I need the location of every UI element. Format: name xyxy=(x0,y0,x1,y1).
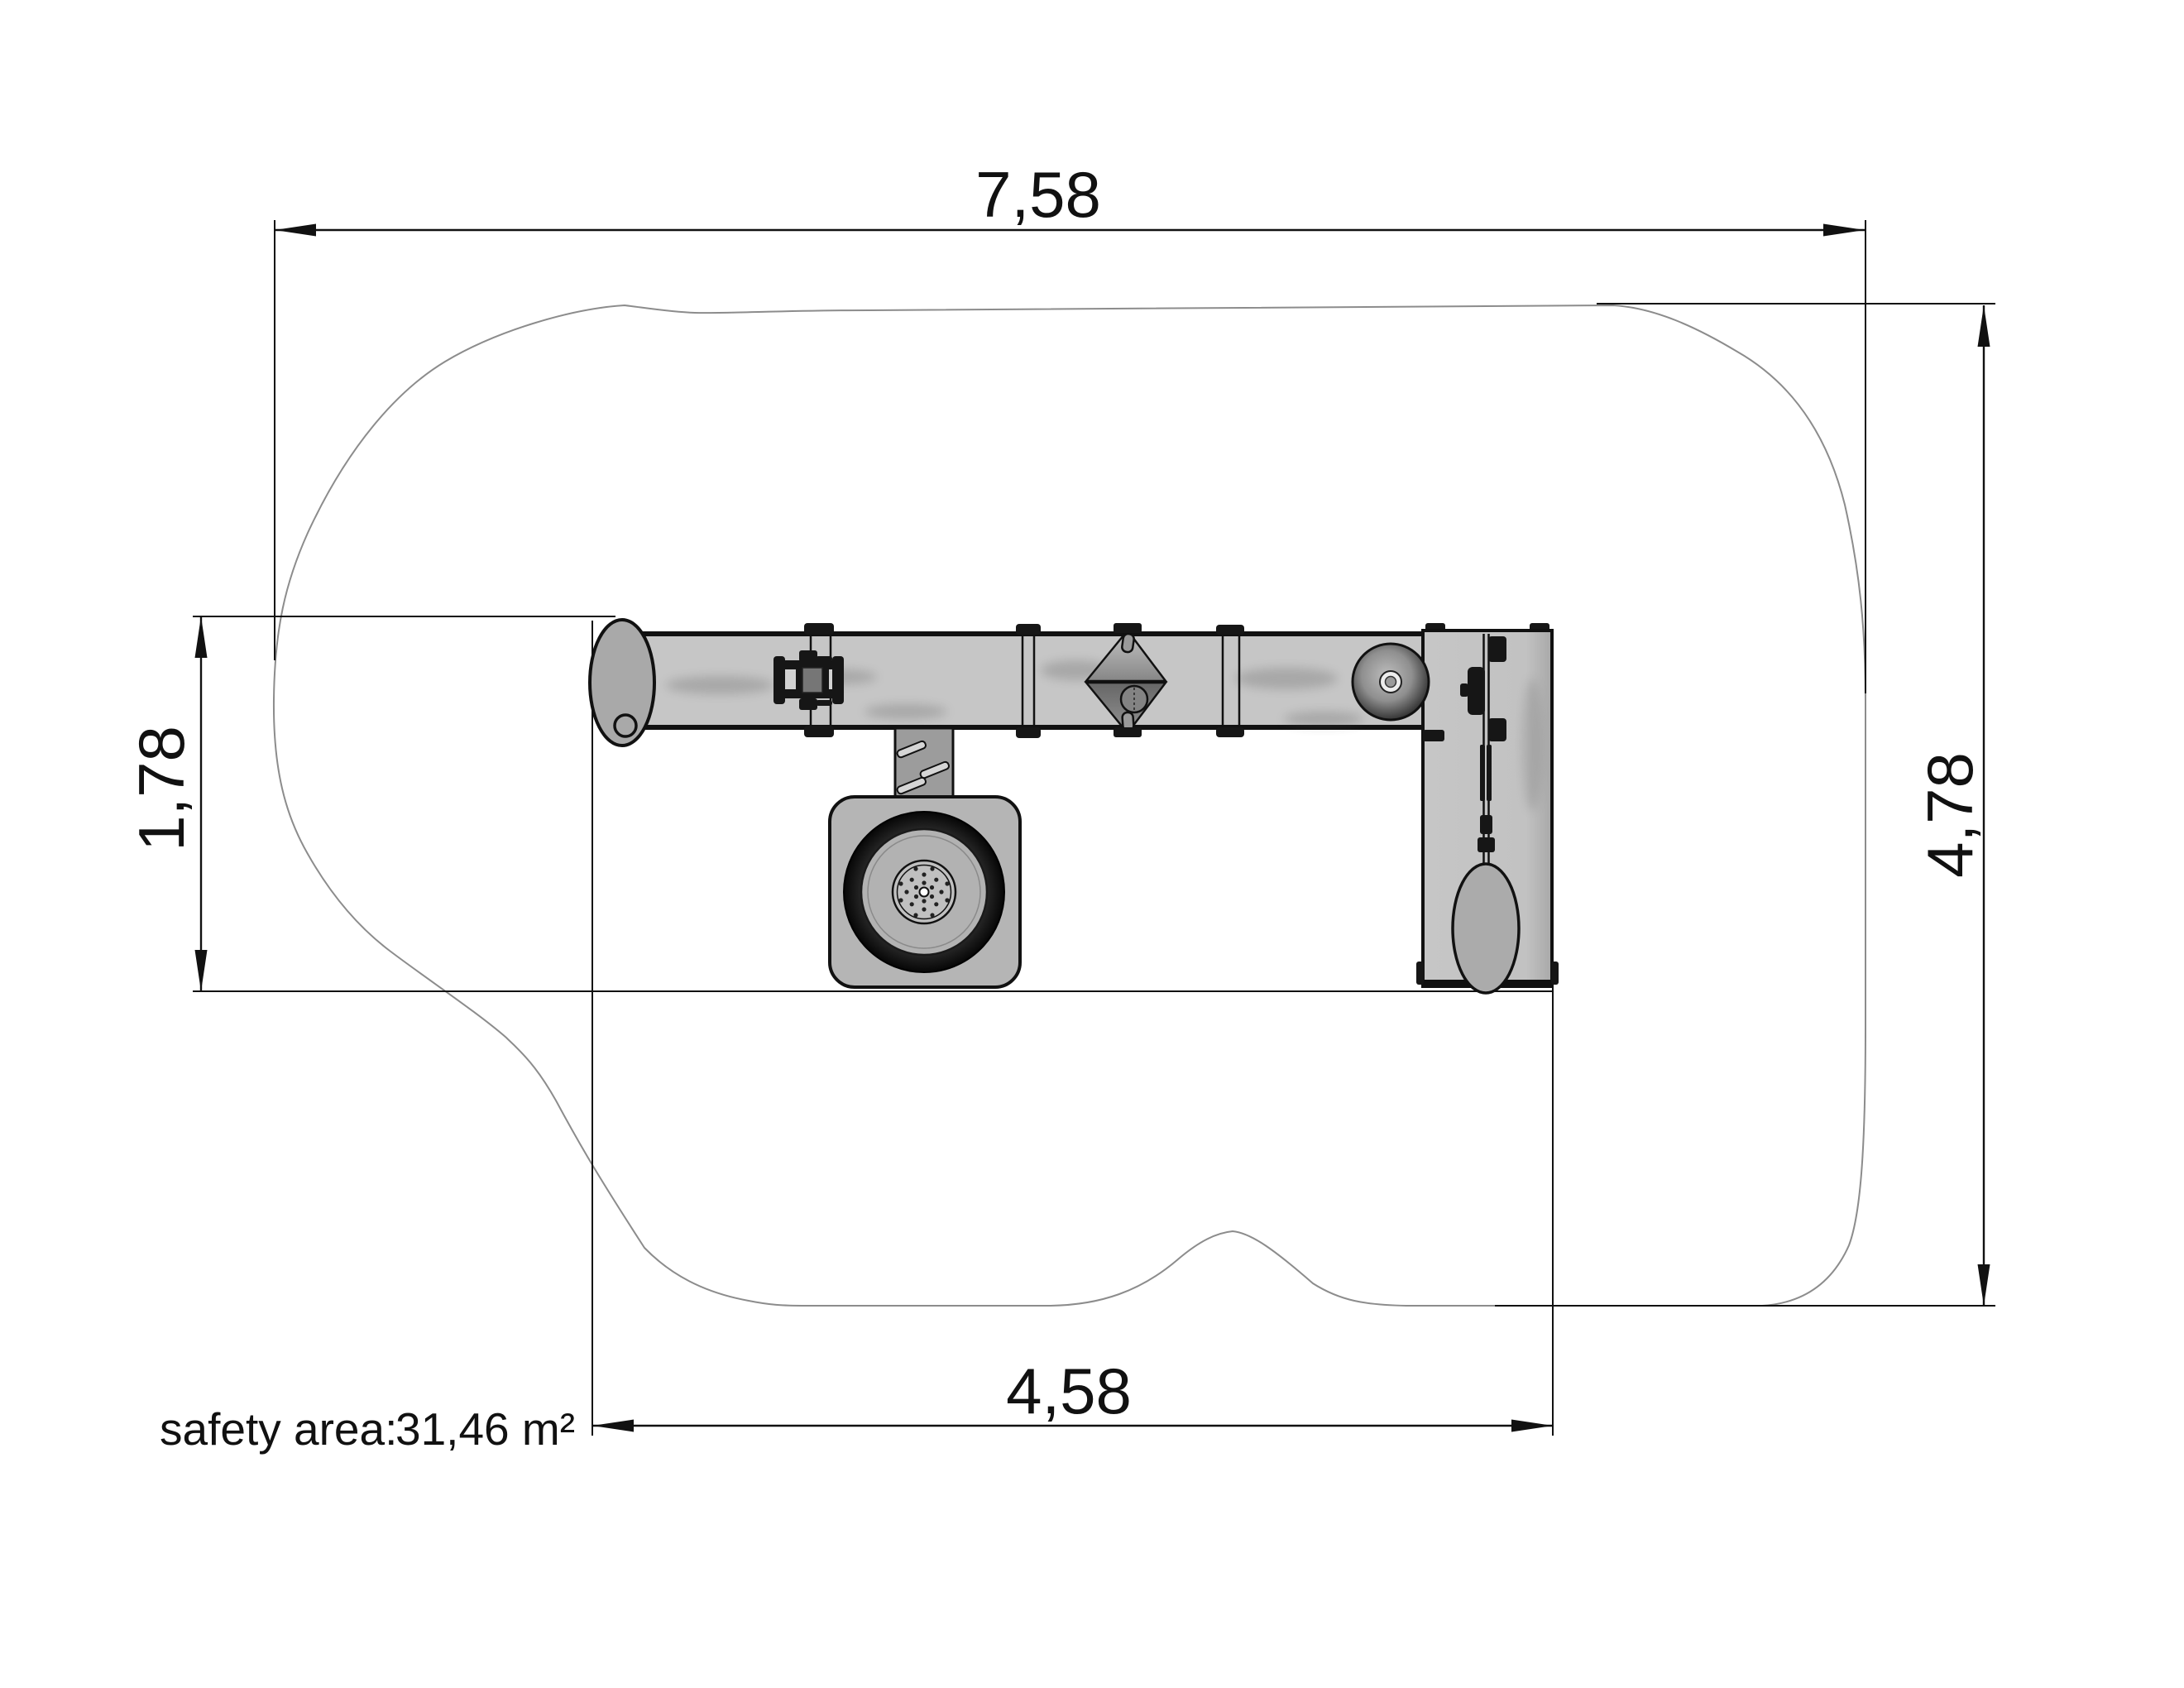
technical-drawing-page: 7,58 4,78 1,78 4,58 xyxy=(0,0,2184,1688)
wheel-end xyxy=(773,656,785,704)
panel-beam-bracket xyxy=(1423,730,1444,741)
safety-area-note: safety area: 31,46 m² xyxy=(160,1403,575,1455)
dimension-arrow xyxy=(592,1420,634,1432)
dimension-value: 7,58 xyxy=(975,158,1101,231)
dimension-arrow xyxy=(1978,1264,1990,1306)
log-end-cap xyxy=(590,620,654,746)
wheel-spoke xyxy=(796,662,802,698)
wheel-mount xyxy=(816,656,832,662)
dimension-arrow xyxy=(195,950,208,991)
dimension-arrow xyxy=(1511,1420,1553,1432)
safety-area-outline xyxy=(274,305,1865,1306)
dim-height-right: 4,78 xyxy=(1495,304,1995,1306)
saddle-slot xyxy=(1122,633,1135,653)
dimension-value: 4,78 xyxy=(1913,752,1986,878)
saddle-mount-tab xyxy=(1114,623,1142,633)
play-panel xyxy=(1416,631,1559,993)
dimension-arrow xyxy=(1823,224,1865,237)
drum-membrane xyxy=(893,861,955,923)
saddle-mount-tab xyxy=(1114,727,1142,737)
dimension-arrow xyxy=(1978,305,1990,347)
safety-area-value: 31,46 m² xyxy=(395,1403,575,1455)
end-cap-hole xyxy=(615,715,636,736)
steering-wheel xyxy=(773,650,844,710)
dim-width-top: 7,58 xyxy=(275,158,1865,693)
dimension-arrow xyxy=(195,616,208,658)
dim-width-bottom: 4,58 xyxy=(592,621,1553,1436)
ground-drum-platform xyxy=(830,797,1020,987)
wheel-mount xyxy=(799,650,817,662)
funnel-mouth-hole xyxy=(1386,677,1396,688)
wheel-mount xyxy=(799,698,817,710)
panel-seat xyxy=(1453,864,1519,993)
membrane-center-hole xyxy=(920,888,929,897)
wheel-mount xyxy=(816,700,832,706)
panel-foot-tab xyxy=(1416,961,1424,985)
panel-shading xyxy=(1522,679,1542,811)
playground-equipment xyxy=(590,620,1559,993)
panel-foot-tab xyxy=(1551,961,1559,985)
wheel-hub xyxy=(802,668,822,693)
talk-funnel xyxy=(1353,644,1429,720)
plan-view-drawing: 7,58 4,78 1,78 4,58 xyxy=(0,0,2184,1688)
dimension-value: 4,58 xyxy=(1006,1355,1132,1427)
safety-area-label: safety area: xyxy=(160,1403,397,1455)
wheel-spoke xyxy=(822,662,829,698)
dimension-arrow xyxy=(275,224,316,237)
wheel-end xyxy=(832,656,844,704)
dimension-value: 1,78 xyxy=(125,726,198,851)
